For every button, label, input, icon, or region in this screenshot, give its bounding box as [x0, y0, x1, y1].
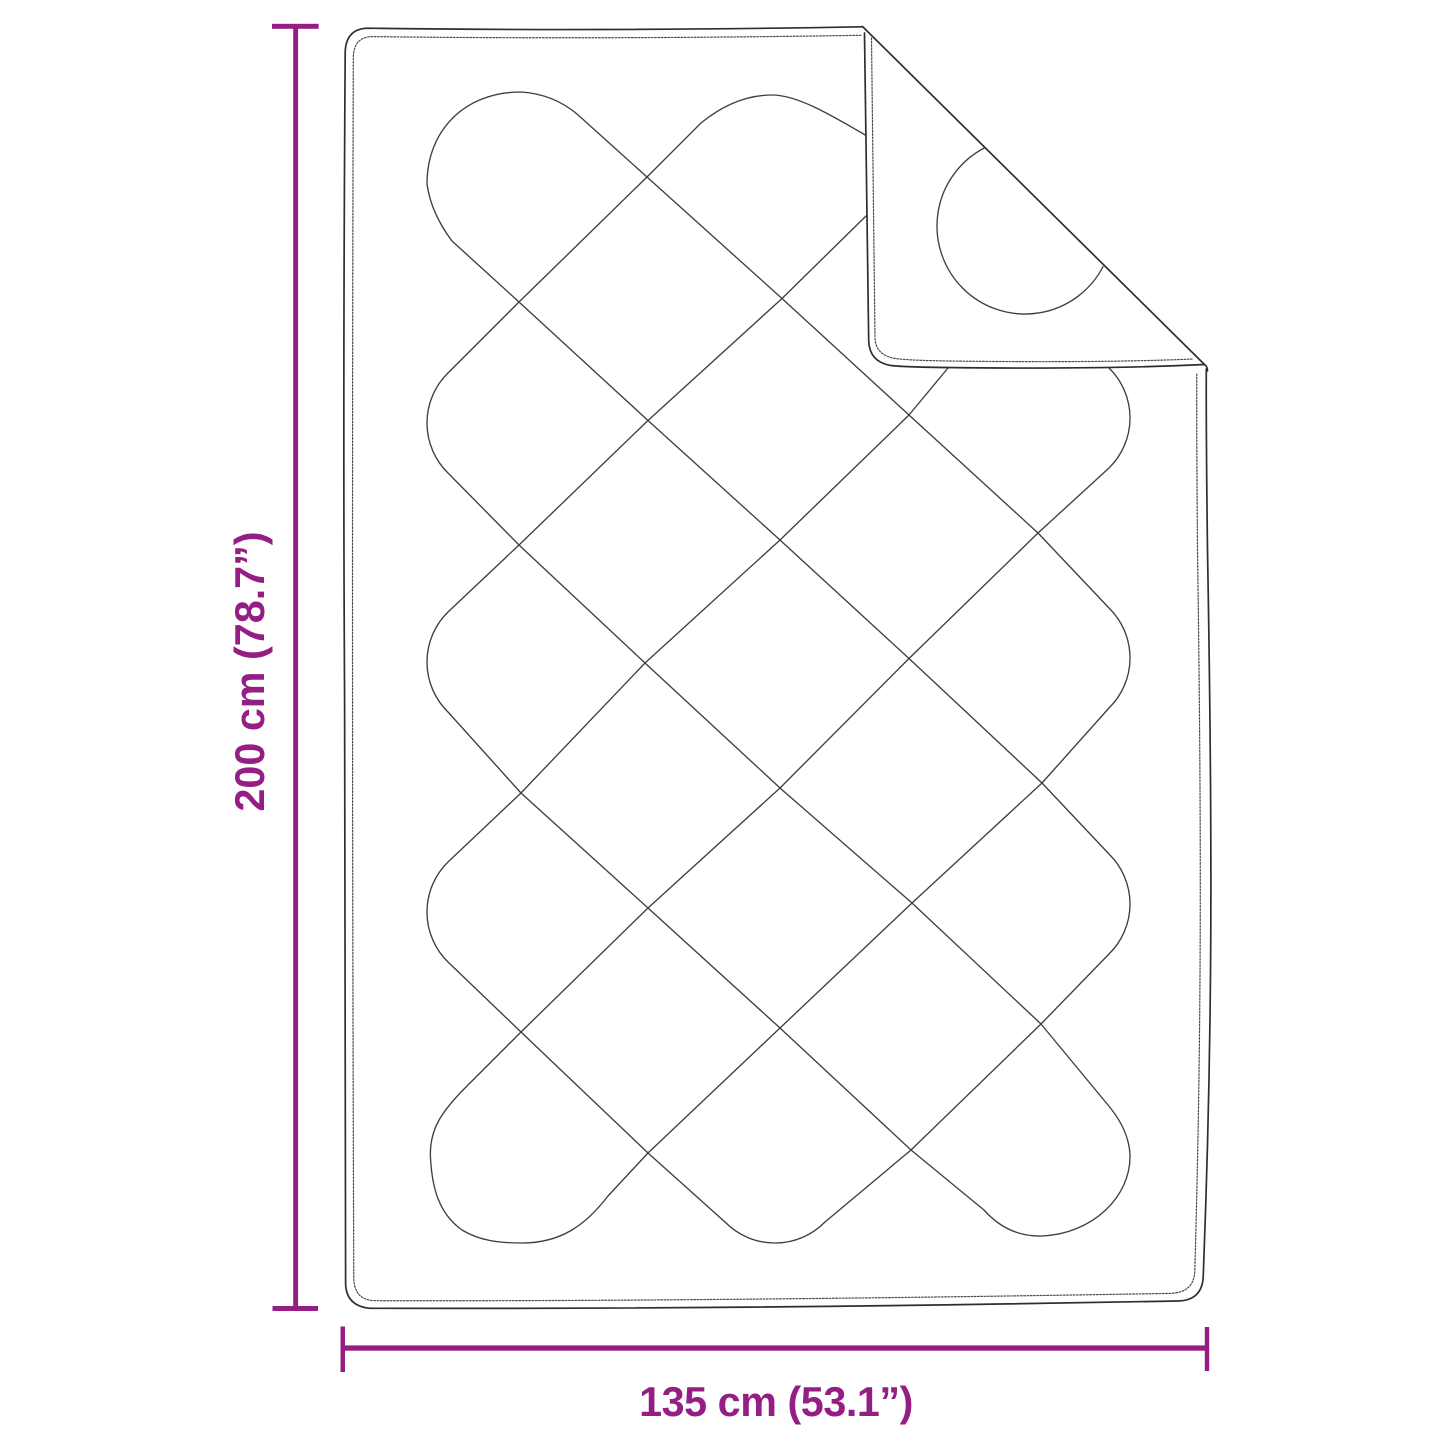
svg-text:200 cm (78.7”): 200 cm (78.7”) — [227, 531, 273, 811]
svg-text:135 cm (53.1”): 135 cm (53.1”) — [639, 1379, 913, 1425]
